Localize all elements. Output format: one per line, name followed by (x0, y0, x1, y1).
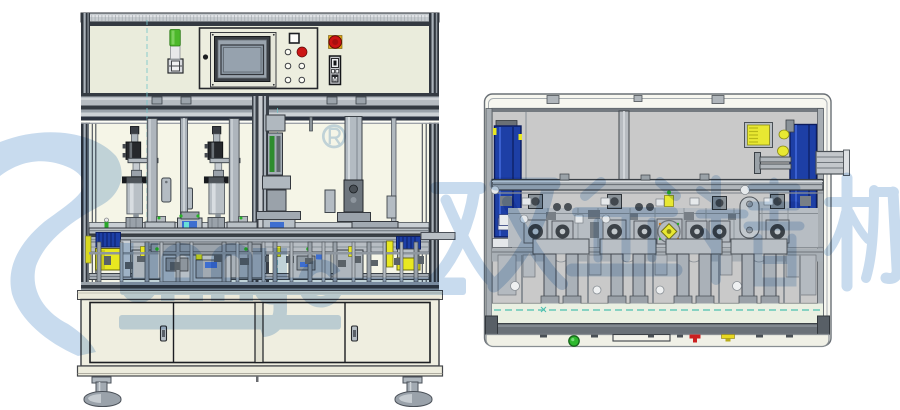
svg-text:M: M (332, 77, 337, 84)
